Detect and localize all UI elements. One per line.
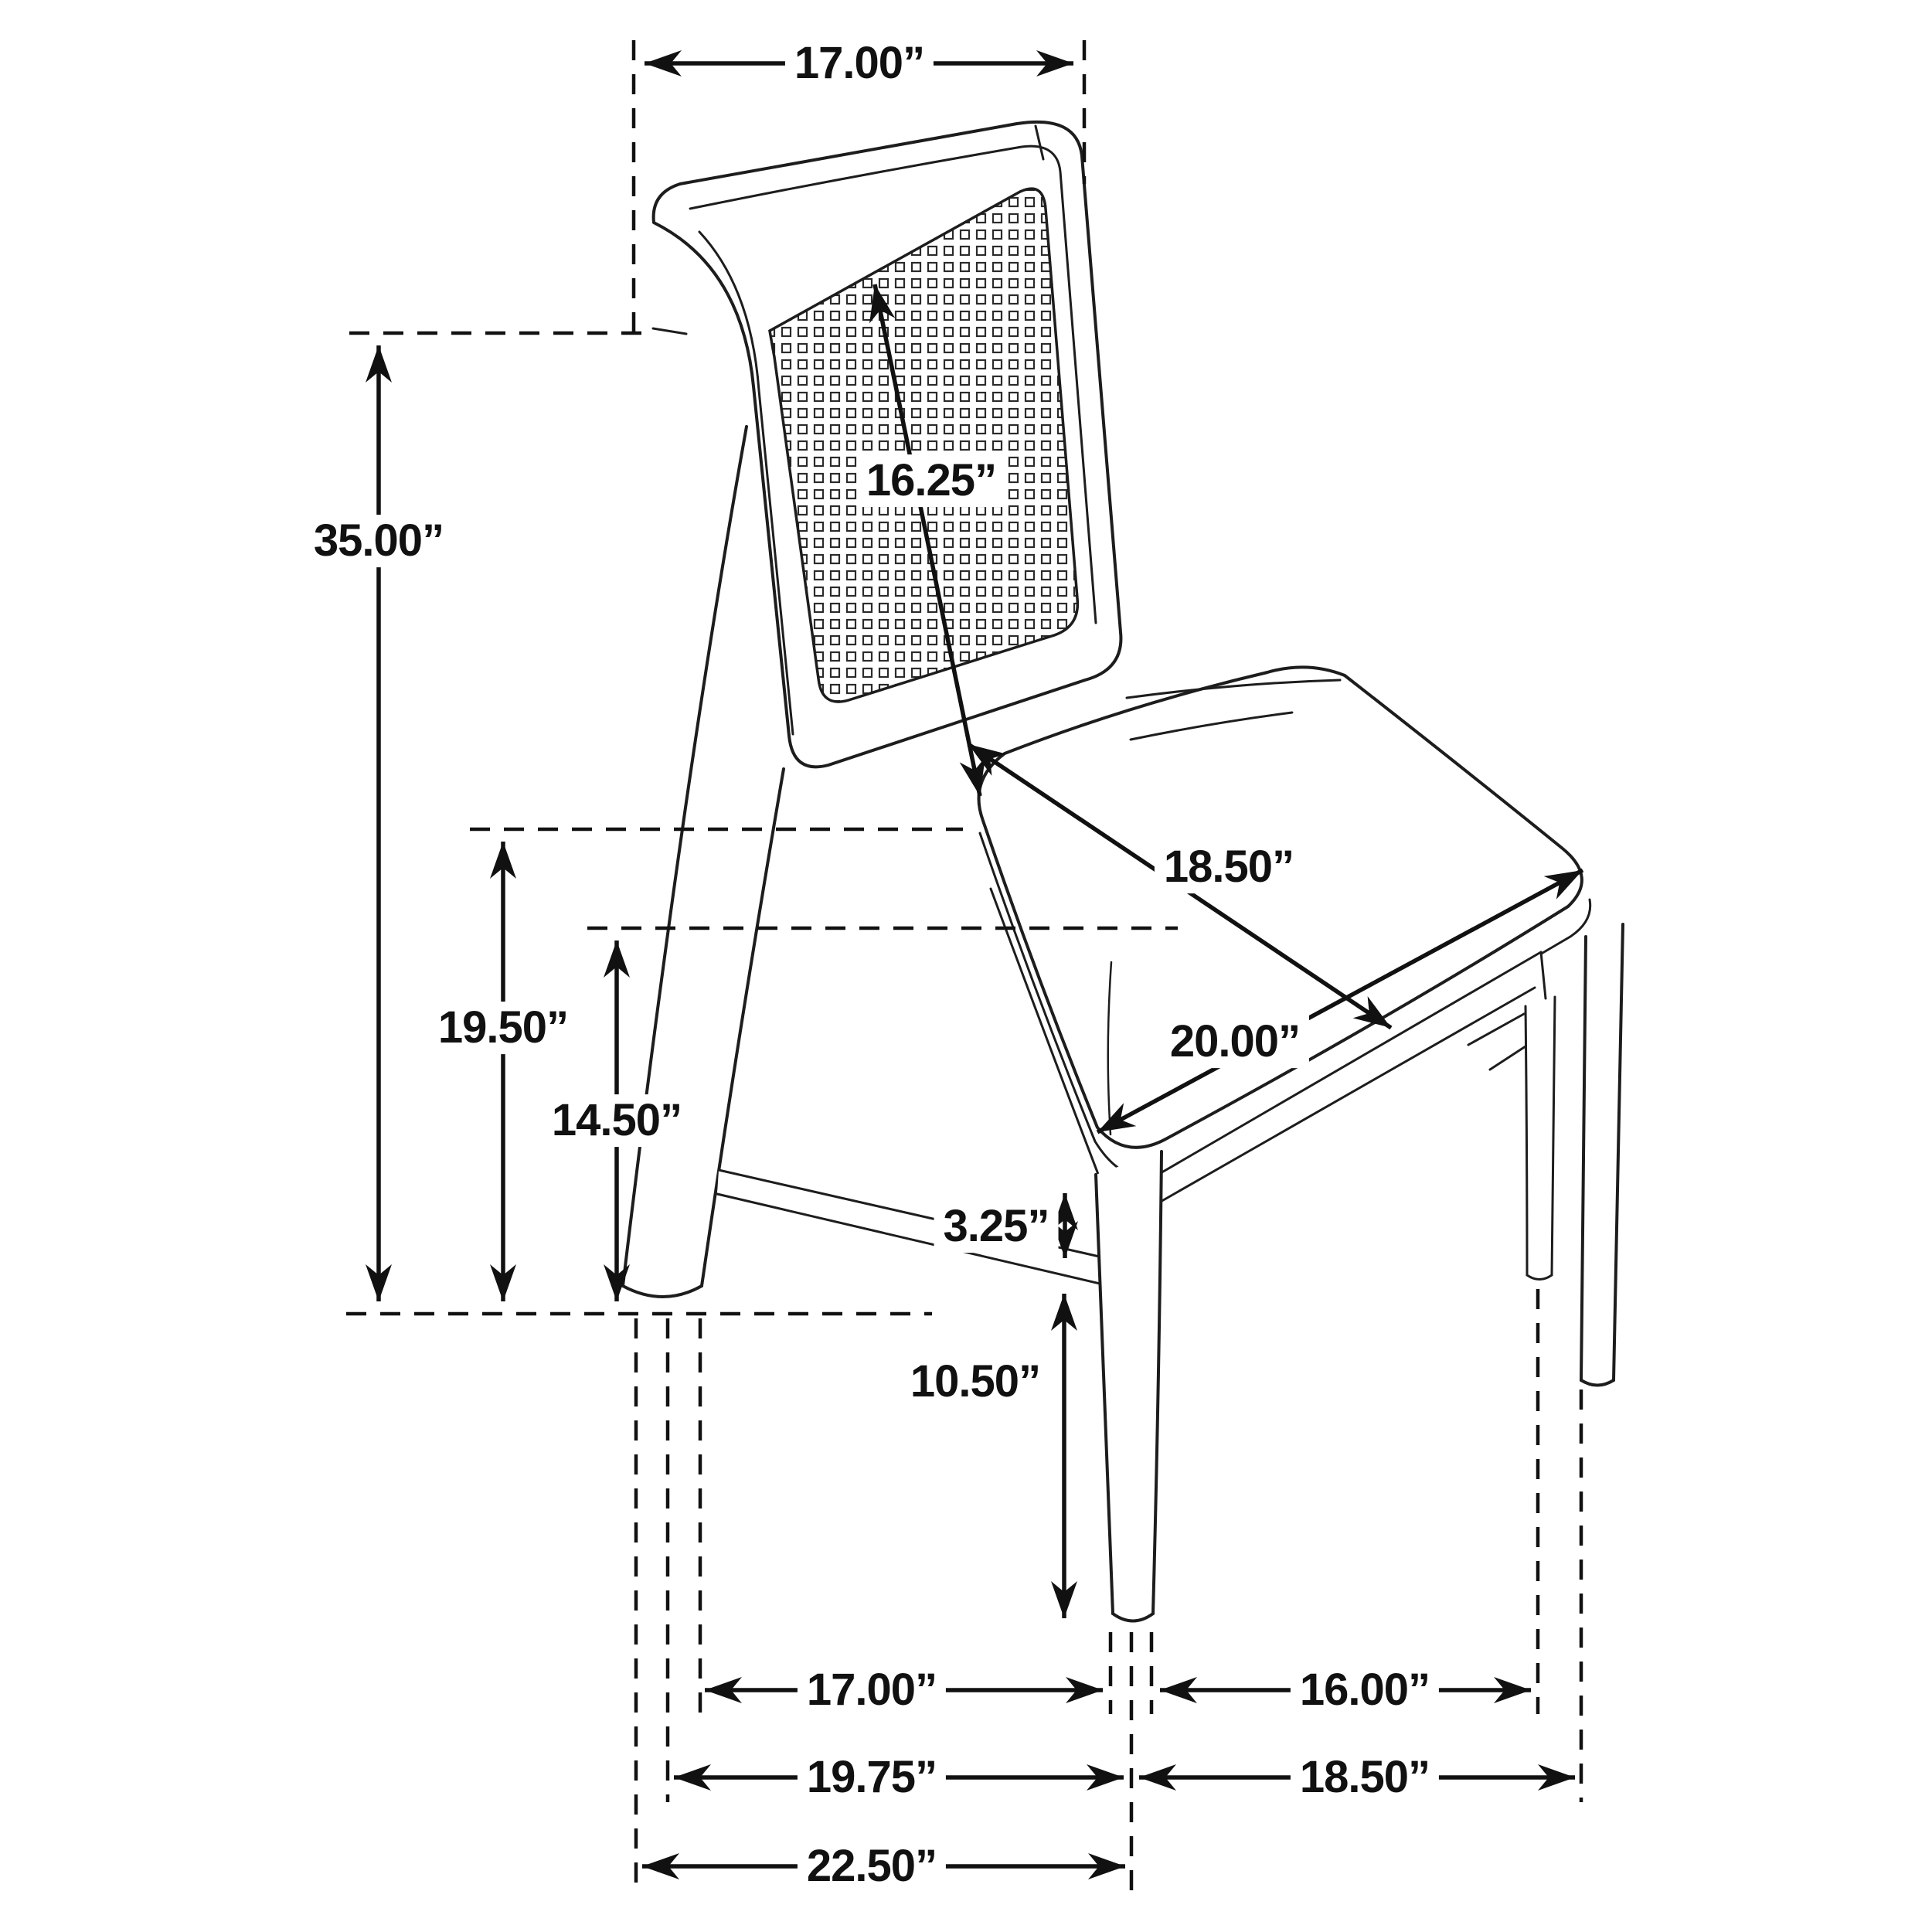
dim-label-front-leg-height: 10.50”: [901, 1355, 1049, 1408]
rear-left-leg-post: [623, 427, 784, 1297]
front-right-leg: [1581, 924, 1623, 1386]
front-left-leg: [1096, 1151, 1162, 1621]
chair-dimension-drawing: [0, 0, 1932, 1932]
dim-label-back-diagonal: 16.25”: [857, 454, 1005, 507]
diagram-canvas: 17.00” 16.25” 35.00” 19.50” 14.50” 18.50…: [0, 0, 1932, 1932]
dim-label-seat-depth: 18.50”: [1155, 841, 1303, 893]
dim-label-front-leg-spacing: 16.00”: [1291, 1664, 1439, 1716]
dim-label-seat-width: 20.00”: [1161, 1015, 1309, 1068]
dim-label-overall-height: 35.00”: [304, 515, 453, 567]
dim-label-floor-width-outer: 18.50”: [1291, 1751, 1439, 1804]
dim-label-back-width: 17.00”: [785, 37, 934, 90]
dim-label-floor-depth-mid: 19.75”: [798, 1751, 946, 1804]
dim-label-overall-depth: 22.50”: [798, 1840, 946, 1893]
dim-label-stretcher-height: 14.50”: [543, 1094, 691, 1147]
dim-label-floor-back-to-front: 17.00”: [798, 1664, 946, 1716]
dim-label-apron-gap: 3.25”: [934, 1200, 1059, 1253]
dim-label-seat-height: 19.50”: [429, 1002, 577, 1054]
rear-right-leg: [1526, 997, 1555, 1281]
